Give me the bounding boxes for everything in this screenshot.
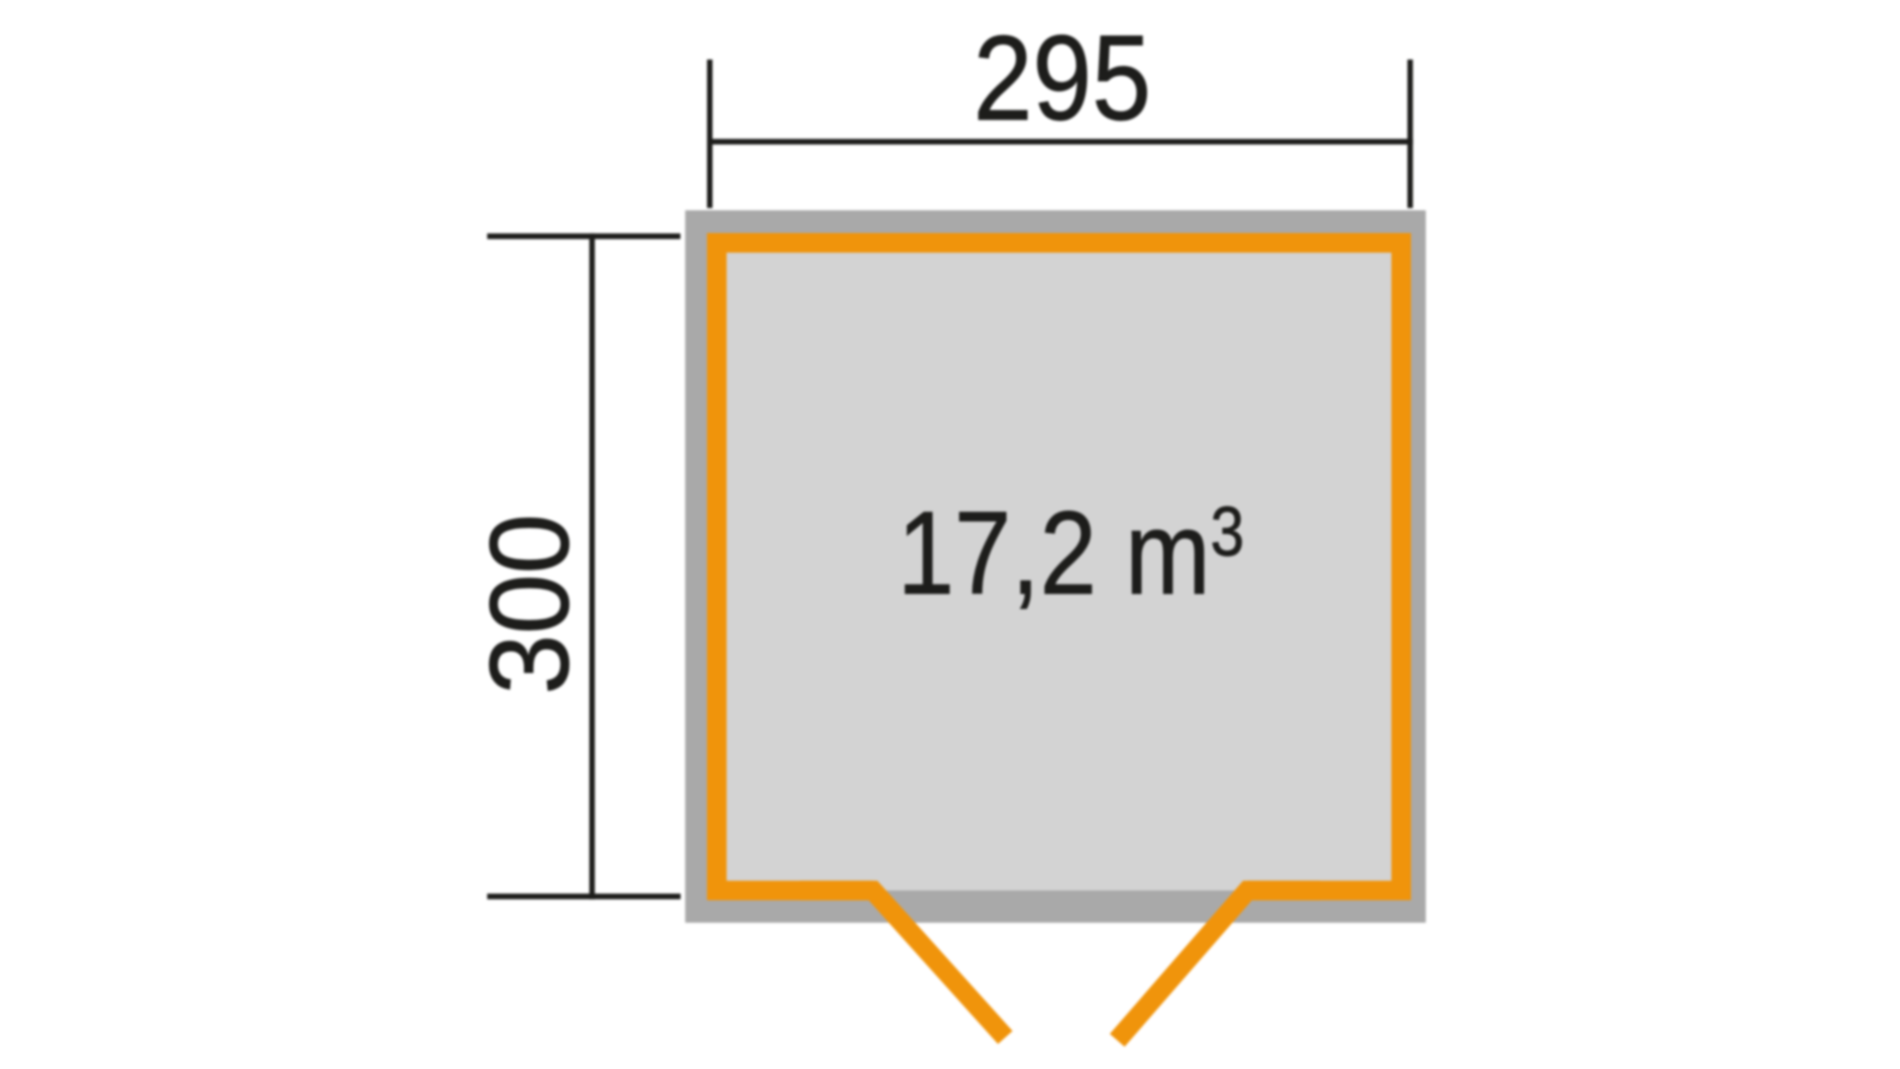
svg-text:300: 300: [467, 514, 592, 695]
svg-text:295: 295: [973, 11, 1151, 145]
svg-text:17,2 m3: 17,2 m3: [897, 488, 1244, 619]
